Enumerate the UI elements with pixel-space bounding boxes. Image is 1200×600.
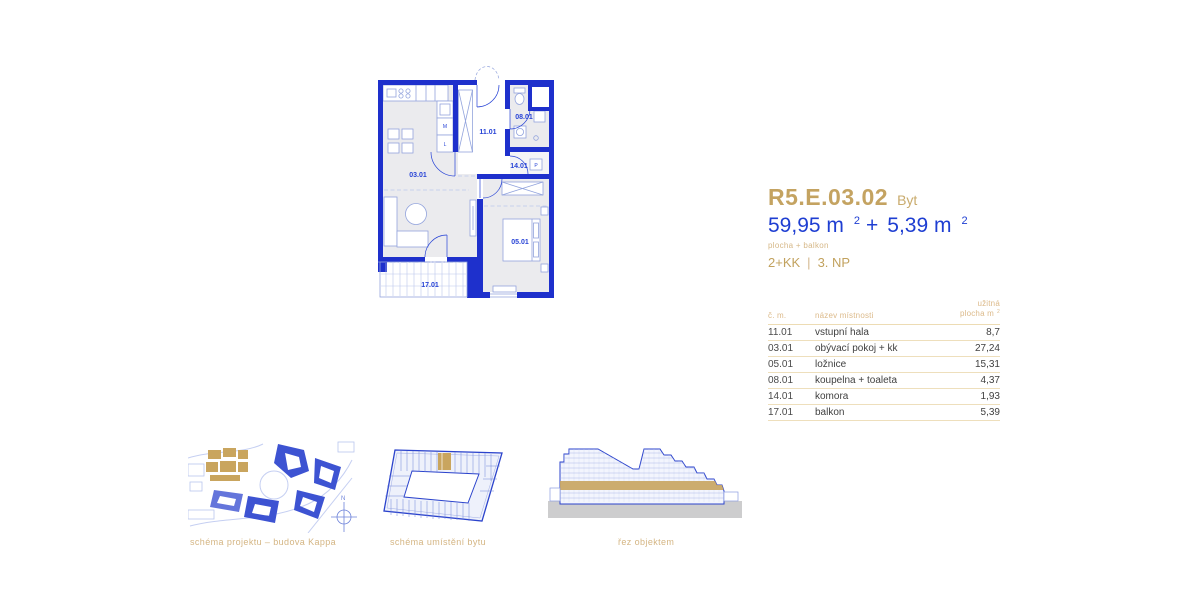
room-name-cell: balkon — [815, 407, 938, 418]
plus-sign: + — [866, 214, 878, 237]
section-outline — [560, 449, 724, 504]
unit-type-label: Byt — [897, 192, 917, 208]
area-total: 59,95 m — [768, 214, 844, 237]
room-number-cell: 05.01 — [768, 359, 815, 370]
kappa-building-highlight — [206, 448, 248, 481]
table-header: č. m. název místnosti užitná plocha m2 — [768, 299, 1000, 325]
room-number-cell: 08.01 — [768, 375, 815, 386]
room-area-cell: 5,39 — [938, 407, 1000, 418]
table-header-area-line2: plocha m — [960, 309, 994, 318]
room-number-cell: 14.01 — [768, 391, 815, 402]
building-floorplan-caption: schéma umístění bytu — [390, 537, 486, 547]
table-row: 11.01 vstupní hala 8,7 — [768, 325, 1000, 341]
dishwasher-icon: M — [443, 124, 447, 130]
site-plan-caption: schéma projektu – budova Kappa — [190, 537, 336, 547]
fridge-icon: L — [444, 142, 447, 148]
layout-separator: | — [807, 255, 810, 270]
unit-highlight — [438, 453, 451, 470]
layout-type: 2+KK — [768, 255, 800, 270]
area-note: plocha + balkon — [768, 241, 968, 250]
right-annex — [724, 492, 738, 501]
left-annex — [550, 488, 560, 501]
site-plan-svg: N — [188, 438, 358, 533]
room-label-balcony: 17.01 — [421, 282, 439, 289]
room-label-hall: 11.01 — [479, 129, 496, 136]
room-area-cell: 27,24 — [938, 343, 1000, 354]
room-name-cell: vstupní hala — [815, 327, 938, 338]
room-name-cell: ložnice — [815, 359, 938, 370]
table-row: 03.01 obývací pokoj + kk 27,24 — [768, 341, 1000, 357]
area-balcony: 5,39 m — [887, 214, 951, 237]
table-row: 08.01 koupelna + toaleta 4,37 — [768, 373, 1000, 389]
room-number-cell: 17.01 — [768, 407, 815, 418]
floor-highlight-band — [560, 481, 724, 490]
room-area-cell: 8,7 — [938, 327, 1000, 338]
area-balcony-sup: 2 — [961, 215, 967, 227]
table-header-area-line1: užitná — [977, 299, 1000, 308]
building-section-caption: řez objektem — [618, 537, 674, 547]
room-area-cell: 1,93 — [938, 391, 1000, 402]
room-number-cell: 03.01 — [768, 343, 815, 354]
table-header-name: název místnosti — [815, 311, 938, 320]
unit-info: R5.E.03.02Byt 59,95 m2+5,39 m2 plocha + … — [768, 186, 968, 270]
table-header-area-sup: 2 — [997, 309, 1000, 315]
apartment-sheet: 03.01 11.01 08.01 14.01 05.01 17.01 M L … — [0, 0, 1200, 600]
rooms-table: č. m. název místnosti užitná plocha m2 1… — [768, 299, 1000, 421]
area-total-sup: 2 — [854, 215, 860, 227]
layout-line: 2+KK|3. NP — [768, 255, 968, 270]
room-label-storage: 14.01 — [510, 163, 528, 170]
floorplan-svg: 03.01 11.01 08.01 14.01 05.01 17.01 M L … — [378, 58, 554, 298]
room-label-living: 03.01 — [409, 172, 427, 179]
table-row: 17.01 balkon 5,39 — [768, 405, 1000, 421]
compass-icon — [331, 502, 357, 532]
table-row: 14.01 komora 1,93 — [768, 389, 1000, 405]
shaft — [532, 87, 549, 107]
room-area-cell: 4,37 — [938, 375, 1000, 386]
room-label-bedroom: 05.01 — [511, 239, 529, 246]
compass-north-label: N — [341, 496, 345, 502]
area-line: 59,95 m2+5,39 m2 — [768, 215, 968, 236]
unit-code: R5.E.03.02 — [768, 184, 888, 210]
building-section-svg — [548, 446, 742, 526]
room-name-cell: komora — [815, 391, 938, 402]
room-number-cell: 11.01 — [768, 327, 815, 338]
floor-number: 3. NP — [818, 255, 851, 270]
room-name-cell: koupelna + toaleta — [815, 375, 938, 386]
room-name-cell: obývací pokoj + kk — [815, 343, 938, 354]
room-area-cell: 15,31 — [938, 359, 1000, 370]
room-label-bathroom: 08.01 — [515, 114, 533, 121]
table-header-number: č. m. — [768, 311, 815, 320]
table-header-area: užitná plocha m2 — [938, 299, 1000, 320]
courtyard — [404, 471, 479, 503]
table-row: 05.01 ložnice 15,31 — [768, 357, 1000, 373]
building-floorplan-svg — [383, 441, 505, 527]
